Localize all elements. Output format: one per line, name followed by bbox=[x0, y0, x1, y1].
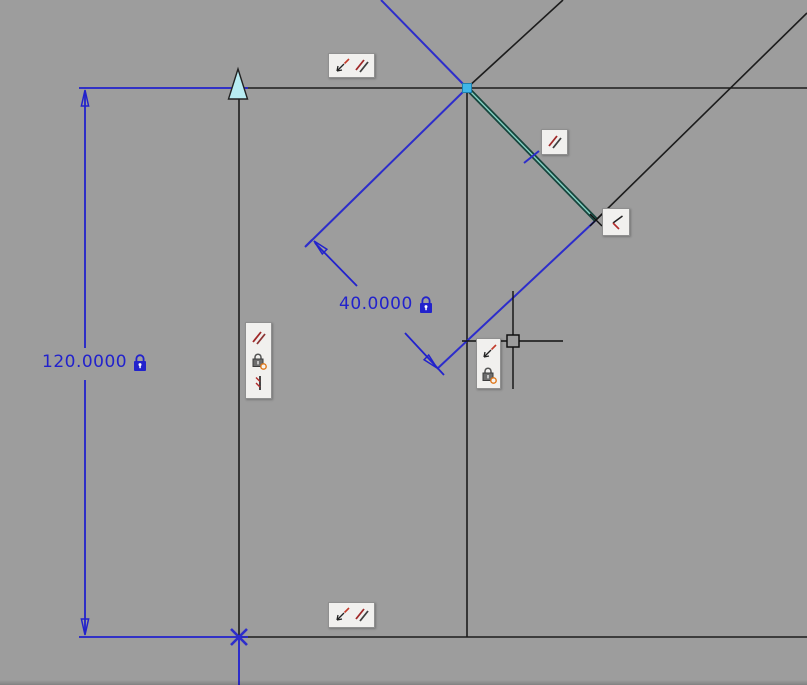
sketch-line-diagonal-blue-top[interactable] bbox=[381, 0, 467, 88]
sketch-line-diagonal-upper[interactable] bbox=[467, 0, 563, 88]
parallel-icon bbox=[250, 329, 268, 347]
sketch-line-diamond-topleft[interactable] bbox=[306, 88, 467, 246]
dimension-120-value: 120.0000 bbox=[42, 352, 127, 372]
dim40-line-lower[interactable] bbox=[405, 333, 444, 375]
dimension-40-value: 40.0000 bbox=[339, 294, 413, 314]
constraint-badge-left-edge[interactable] bbox=[245, 322, 272, 399]
constraint-badge-right-corner[interactable] bbox=[602, 208, 630, 236]
dim40-line-upper[interactable] bbox=[315, 243, 357, 286]
coincident-icon bbox=[333, 57, 351, 75]
crosshair-pickbox bbox=[507, 335, 519, 347]
dim40-extension-stub bbox=[305, 240, 312, 247]
sketch-geometry-layer bbox=[0, 0, 807, 685]
constraint-badge-bottom-edge[interactable] bbox=[328, 602, 375, 628]
dimension-120-label[interactable]: 120.0000 bbox=[42, 352, 148, 372]
parallel-icon bbox=[353, 57, 371, 75]
constraint-badge-top-edge[interactable] bbox=[328, 53, 375, 78]
sketch-canvas[interactable]: 120.0000 40.0000 bbox=[0, 0, 807, 685]
dimension-40-label[interactable]: 40.0000 bbox=[339, 294, 434, 314]
vertex-point-marker[interactable] bbox=[463, 84, 472, 93]
constraint-badge-selected-line[interactable] bbox=[541, 129, 568, 155]
perpendicular-icon bbox=[607, 213, 625, 231]
constraint-badge-cursor[interactable] bbox=[476, 338, 501, 389]
endpoint-triangle-marker[interactable] bbox=[229, 69, 248, 99]
dimension-lock-icon bbox=[418, 295, 434, 314]
parallel-icon bbox=[353, 606, 371, 624]
coincident-icon bbox=[333, 606, 351, 624]
lock-icon bbox=[479, 365, 498, 384]
selected-sketch-line-core bbox=[467, 88, 596, 220]
coincident-icon bbox=[480, 343, 498, 361]
sketch-line-diagonal-right[interactable] bbox=[596, 13, 807, 220]
parallel-icon bbox=[546, 133, 564, 151]
collinear-icon bbox=[250, 374, 268, 392]
lock-icon bbox=[249, 351, 268, 370]
dimension-lock-icon bbox=[132, 353, 148, 372]
